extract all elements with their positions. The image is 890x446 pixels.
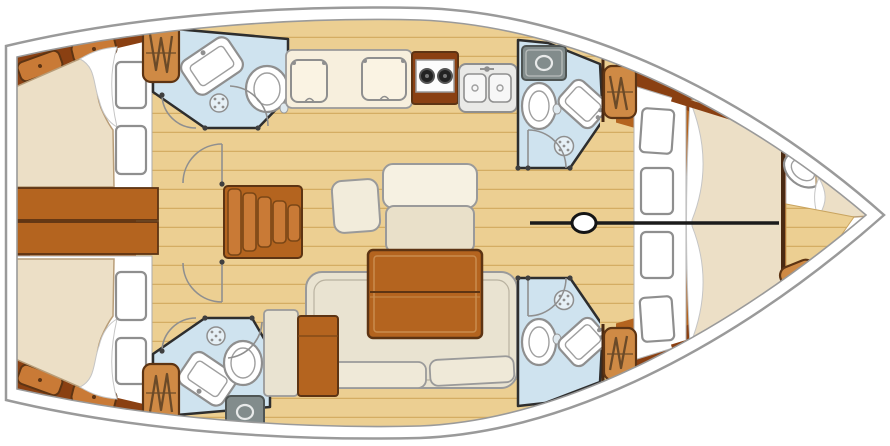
mast-icon: [572, 214, 596, 233]
bench-seat-back: [383, 164, 477, 208]
bench-seat: [386, 206, 474, 252]
double-sink: [459, 64, 517, 112]
stove: [412, 52, 458, 104]
shower-drain-icon: [555, 291, 574, 310]
berth-pillow: [116, 62, 146, 108]
stair-tread: [258, 197, 271, 247]
shower-drain-icon: [555, 137, 574, 156]
side-seat: [331, 178, 381, 233]
settee-cushion: [429, 356, 514, 386]
berth-pillow: [116, 272, 146, 320]
shower-drain-icon: [210, 94, 228, 112]
interior: [2, 14, 876, 434]
toilet: [522, 83, 556, 129]
stair-tread: [288, 205, 300, 241]
berth-pillow: [116, 338, 146, 384]
stair-tread: [243, 193, 256, 251]
sideboard: [264, 310, 298, 396]
shower-drain-icon: [207, 327, 225, 345]
floor-plan-canvas: Sailing yacht interior layout plan (top-…: [0, 0, 890, 446]
engine-box: [6, 188, 158, 220]
stair-tread: [273, 201, 286, 243]
locker-door: [291, 60, 327, 102]
locker-door: [362, 58, 406, 100]
hanging-locker-forward-port: [604, 66, 636, 118]
berth-pillow: [640, 108, 675, 154]
side-cabinet: [298, 316, 338, 396]
berth-pillow: [641, 232, 673, 278]
berth-pillow: [640, 296, 675, 342]
berth-pillow: [641, 168, 673, 214]
stair-tread: [228, 189, 241, 255]
yacht-floor-plan: Sailing yacht interior layout plan (top-…: [0, 0, 890, 446]
berth-pillow: [116, 126, 146, 174]
engine-box: [6, 222, 158, 254]
toilet: [522, 319, 556, 365]
dining-table: [368, 250, 482, 338]
top-load-locker: [522, 46, 566, 80]
